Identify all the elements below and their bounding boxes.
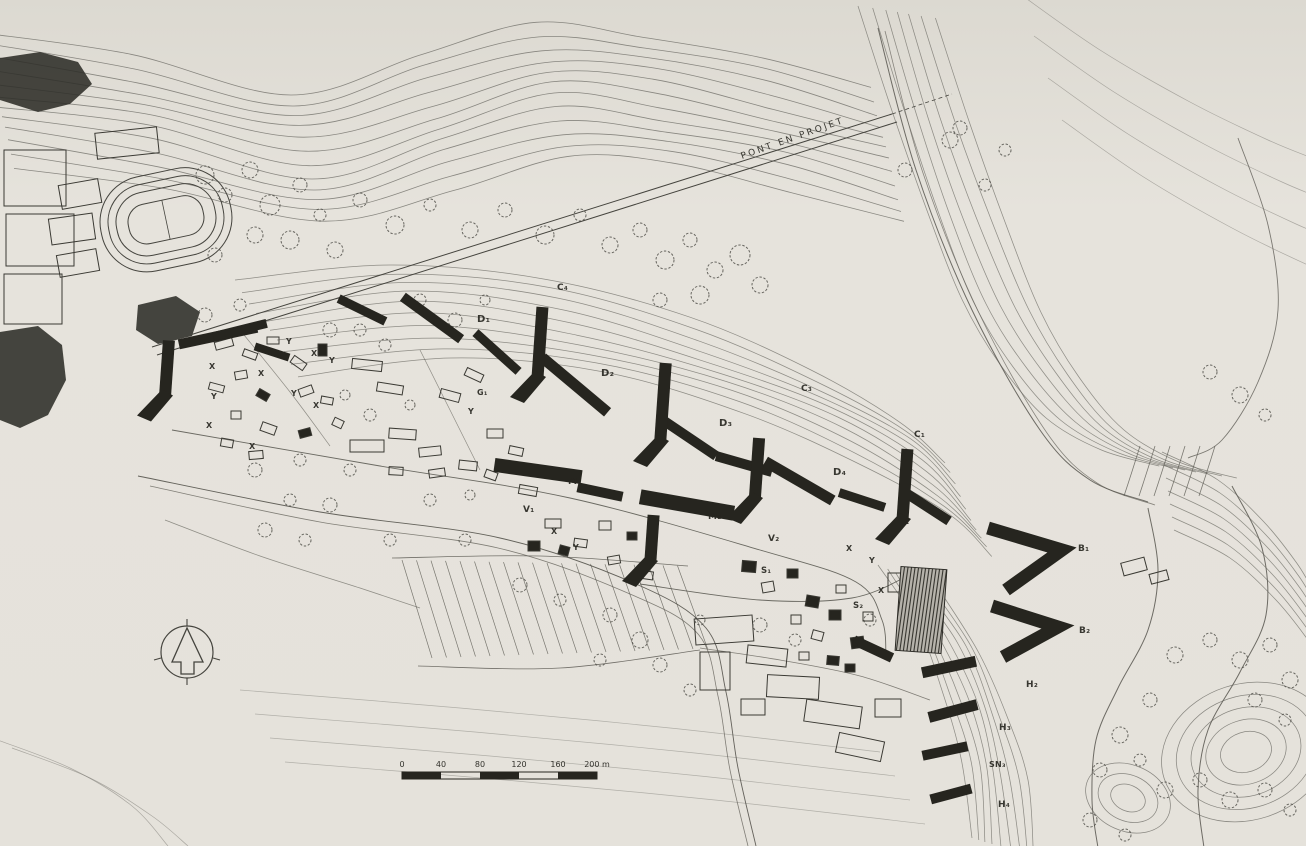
map-label: C₃ — [801, 384, 812, 394]
map-label: M₂ — [708, 512, 722, 522]
map-label: G₁ — [477, 388, 488, 397]
scale-segment — [402, 772, 441, 779]
site-plan-map: PONT EN PROJETC₄C₃C₁D₁D₂D₃D₄MM₂V₁V₂ES₁S₂… — [0, 0, 1306, 846]
map-label: X — [311, 349, 318, 358]
map-label: Y — [210, 392, 217, 401]
map-label: Y — [868, 556, 875, 565]
building-small-solid — [742, 560, 757, 572]
map-label: X — [209, 362, 216, 371]
map-label: S₁ — [761, 566, 771, 576]
map-label: D₄ — [833, 467, 846, 478]
map-label: X — [249, 442, 256, 451]
building-small-solid — [845, 664, 855, 672]
map-label: SN₃ — [989, 760, 1006, 769]
scale-tick-label: 200 m — [584, 760, 610, 769]
map-label: V₂ — [768, 534, 780, 544]
map-label: X — [846, 544, 853, 553]
map-label: X — [878, 586, 885, 595]
map-label: B₁ — [1078, 544, 1089, 554]
map-label: C₄ — [557, 283, 568, 293]
scale-tick-label: 160 — [550, 760, 565, 769]
map-label: D₃ — [719, 418, 732, 429]
scale-tick-label: 80 — [475, 760, 485, 769]
scale-tick-label: 40 — [436, 760, 446, 769]
map-label: S₂ — [853, 601, 863, 611]
scale-segment — [558, 772, 597, 779]
building-small-solid — [805, 595, 820, 608]
map-label: H₄ — [998, 800, 1010, 810]
map-label: X — [206, 421, 213, 430]
map-label: X — [551, 527, 558, 536]
building-small-solid — [787, 569, 798, 578]
map-label: Y — [328, 356, 335, 365]
map-label: V₁ — [523, 505, 535, 515]
map-label: Y — [290, 389, 297, 398]
building-small-solid — [829, 610, 841, 620]
hatched-tower-block — [895, 566, 947, 653]
building-small-solid — [558, 545, 570, 556]
map-label: Y — [285, 337, 292, 346]
map-label: E — [903, 517, 909, 527]
map-label: H₃ — [999, 723, 1011, 733]
map-label: Y — [467, 407, 474, 416]
map-label: Y — [572, 543, 579, 552]
building-small-solid — [627, 532, 637, 540]
paper-background — [0, 0, 1306, 846]
map-label: C₁ — [914, 430, 925, 440]
scale-tick-label: 0 — [399, 760, 404, 769]
map-label: X — [258, 369, 265, 378]
building-small-solid — [318, 344, 327, 356]
map-label: B₂ — [1079, 626, 1090, 636]
map-label: X — [313, 401, 320, 410]
map-label: H₂ — [1026, 680, 1038, 690]
scanned-map-page: PONT EN PROJETC₄C₃C₁D₁D₂D₃D₄MM₂V₁V₂ES₁S₂… — [0, 0, 1306, 846]
scale-segment — [480, 772, 519, 779]
scale-tick-label: 120 — [511, 760, 526, 769]
building-small-solid — [827, 655, 840, 665]
map-label: D₂ — [601, 368, 614, 379]
building-small-solid — [528, 541, 540, 551]
map-label: X — [853, 641, 860, 650]
map-label: M — [568, 477, 577, 487]
map-label: D₁ — [477, 314, 490, 325]
